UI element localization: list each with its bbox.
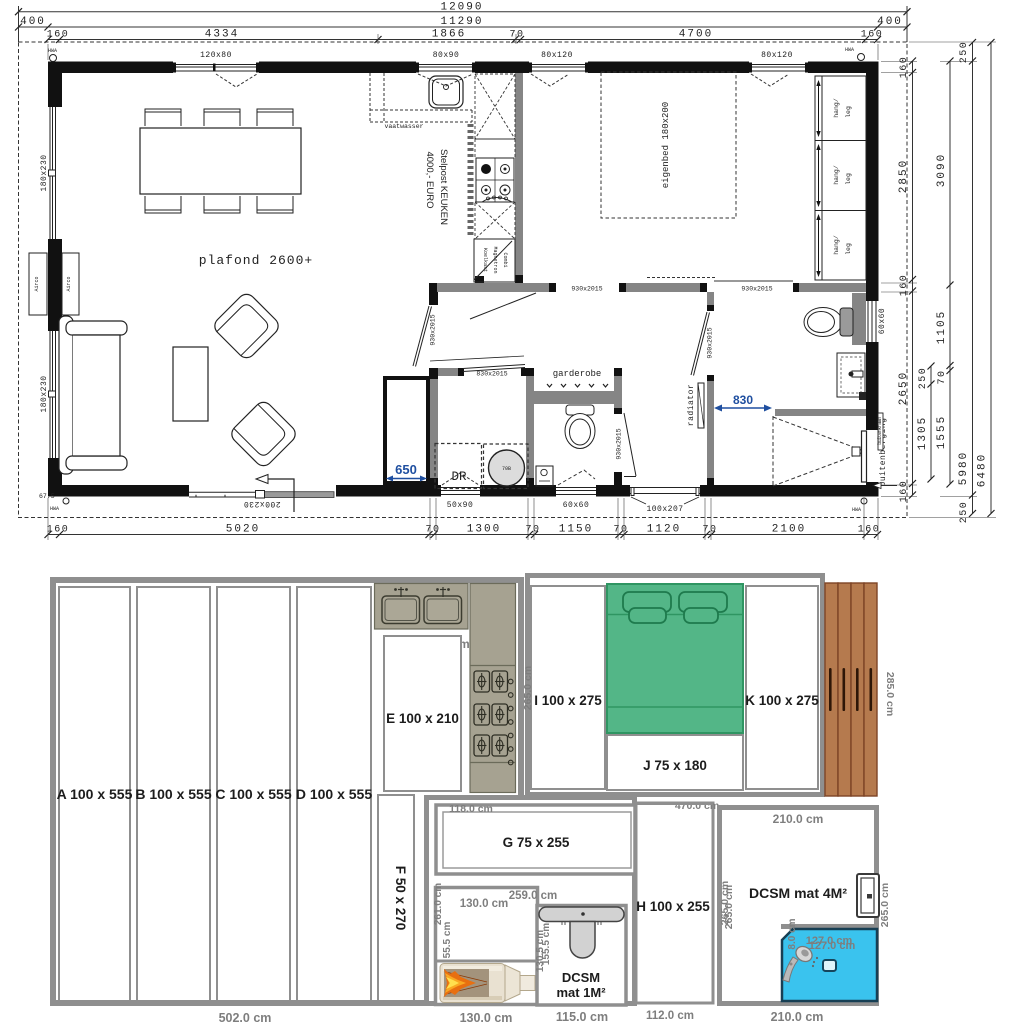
- svg-text:12090: 12090: [440, 2, 483, 14]
- svg-text:1305: 1305: [917, 416, 929, 450]
- svg-text:70: 70: [509, 30, 524, 41]
- svg-text:259.0 cm: 259.0 cm: [509, 890, 558, 902]
- svg-text:C 100 x 555: C 100 x 555: [215, 786, 291, 802]
- svg-text:200x230: 200x230: [243, 499, 280, 508]
- svg-text:1866: 1866: [432, 29, 466, 41]
- svg-text:Airco: Airco: [66, 276, 72, 291]
- svg-text:70: 70: [613, 525, 628, 536]
- svg-text:160: 160: [899, 56, 910, 79]
- svg-text:hang/: hang/: [833, 235, 840, 255]
- svg-text:4334: 4334: [205, 29, 239, 41]
- svg-text:160: 160: [47, 525, 70, 536]
- svg-text:vaatwasser: vaatwasser: [384, 123, 423, 130]
- svg-text:HWA: HWA: [852, 507, 861, 513]
- svg-text:265.0 cm: 265.0 cm: [879, 883, 891, 927]
- svg-text:127.0 cm: 127.0 cm: [809, 940, 856, 952]
- svg-text:HWA: HWA: [48, 48, 57, 54]
- svg-text:leg: leg: [845, 243, 852, 255]
- svg-text:Combi: Combi: [502, 252, 508, 267]
- svg-text:930x2015: 930x2015: [571, 286, 602, 293]
- svg-text:8.0 cm: 8.0 cm: [787, 918, 798, 949]
- svg-text:265.0 cm: 265.0 cm: [522, 666, 534, 710]
- svg-text:J 75 x 180: J 75 x 180: [643, 758, 707, 773]
- svg-text:G 75 x 255: G 75 x 255: [503, 835, 570, 850]
- svg-text:261.0 cm: 261.0 cm: [433, 883, 444, 925]
- svg-text:plafond 2600+: plafond 2600+: [199, 253, 313, 268]
- svg-text:3090: 3090: [936, 153, 948, 187]
- svg-text:120x80: 120x80: [200, 51, 232, 60]
- svg-text:250: 250: [959, 501, 970, 524]
- svg-text:80x120: 80x120: [541, 51, 573, 60]
- svg-text:eigenbed 180x200: eigenbed 180x200: [661, 102, 671, 188]
- svg-text:hang/: hang/: [833, 165, 840, 185]
- svg-text:Koelkast: Koelkast: [482, 248, 488, 272]
- svg-text:DR: DR: [451, 470, 467, 484]
- svg-text:930x2015: 930x2015: [707, 327, 714, 358]
- svg-text:830: 830: [733, 393, 753, 407]
- svg-text:1555: 1555: [936, 415, 948, 449]
- svg-text:1105: 1105: [936, 310, 948, 344]
- svg-text:6480: 6480: [977, 453, 989, 487]
- svg-text:180x230: 180x230: [40, 154, 49, 191]
- svg-text:H 100 x 255: H 100 x 255: [636, 899, 710, 914]
- svg-text:70B: 70B: [502, 466, 511, 472]
- svg-text:4000,- EURO: 4000,- EURO: [424, 151, 435, 208]
- svg-text:650: 650: [395, 462, 417, 477]
- svg-text:2650: 2650: [898, 371, 910, 405]
- svg-text:285.0 cm: 285.0 cm: [884, 672, 896, 716]
- svg-text:112.0 cm: 112.0 cm: [646, 1010, 694, 1022]
- svg-text:130.5 cm: 130.5 cm: [535, 930, 546, 972]
- svg-text:70: 70: [937, 369, 948, 384]
- svg-text:buitenkraan: buitenkraan: [877, 417, 883, 445]
- svg-text:Magnetron: Magnetron: [492, 246, 498, 273]
- svg-text:D 100 x 555: D 100 x 555: [296, 786, 372, 802]
- svg-text:470.0 cm: 470.0 cm: [675, 800, 719, 812]
- svg-text:118.0 cm: 118.0 cm: [449, 803, 493, 815]
- svg-text:100x207: 100x207: [646, 505, 683, 514]
- svg-text:HWA: HWA: [845, 47, 854, 53]
- svg-text:400: 400: [877, 16, 903, 28]
- svg-text:1150: 1150: [559, 524, 593, 536]
- svg-text:502.0 cm: 502.0 cm: [219, 1011, 272, 1025]
- svg-text:160: 160: [861, 30, 884, 41]
- svg-text:400: 400: [20, 16, 46, 28]
- svg-text:A 100 x 555: A 100 x 555: [57, 786, 133, 802]
- svg-text:Stelpost KEUKEN: Stelpost KEUKEN: [438, 149, 449, 225]
- svg-text:70: 70: [425, 525, 440, 536]
- svg-text:E 100 x 210: E 100 x 210: [386, 711, 459, 726]
- svg-text:160: 160: [899, 274, 910, 297]
- svg-text:radiator: radiator: [687, 384, 696, 426]
- svg-text:930x2015: 930x2015: [616, 428, 623, 459]
- svg-text:4700: 4700: [679, 29, 713, 41]
- svg-text:11290: 11290: [440, 16, 483, 28]
- svg-text:60x60: 60x60: [878, 308, 887, 335]
- svg-text:5980: 5980: [958, 451, 970, 485]
- svg-text:130.0 cm: 130.0 cm: [460, 898, 509, 910]
- svg-text:hang/: hang/: [833, 98, 840, 118]
- svg-text:DCSM: DCSM: [562, 970, 600, 985]
- svg-text:50x90: 50x90: [447, 501, 474, 510]
- svg-text:265.0 cm: 265.0 cm: [723, 885, 735, 929]
- svg-text:leg: leg: [845, 106, 852, 118]
- svg-text:I 100 x 275: I 100 x 275: [534, 693, 602, 708]
- svg-text:1300: 1300: [467, 524, 501, 536]
- svg-text:210.0 cm: 210.0 cm: [771, 1010, 824, 1024]
- svg-text:67.5: 67.5: [39, 493, 55, 500]
- svg-text:2850: 2850: [898, 159, 910, 193]
- svg-text:250: 250: [959, 41, 970, 64]
- svg-text:830x2015: 830x2015: [476, 371, 507, 378]
- svg-text:1120: 1120: [647, 524, 681, 536]
- svg-text:K 100 x 275: K 100 x 275: [745, 693, 819, 708]
- svg-text:DCSM mat 4M²: DCSM mat 4M²: [749, 885, 847, 901]
- svg-text:HWA: HWA: [50, 506, 59, 512]
- svg-text:2100: 2100: [772, 524, 806, 536]
- svg-text:160: 160: [858, 525, 881, 536]
- svg-text:80x90: 80x90: [433, 51, 460, 60]
- svg-text:930x2015: 930x2015: [741, 286, 772, 293]
- svg-text:5020: 5020: [226, 524, 260, 536]
- svg-text:garderobe: garderobe: [553, 369, 602, 379]
- svg-text:160: 160: [47, 30, 70, 41]
- svg-text:80x120: 80x120: [761, 51, 793, 60]
- svg-text:mat 1M²: mat 1M²: [556, 985, 606, 1000]
- svg-text:180x230: 180x230: [40, 375, 49, 412]
- svg-text:leg: leg: [845, 173, 852, 185]
- svg-text:60x60: 60x60: [563, 501, 590, 510]
- svg-text:210.0 cm: 210.0 cm: [773, 812, 824, 826]
- svg-text:130.0 cm: 130.0 cm: [460, 1011, 513, 1025]
- svg-text:250: 250: [918, 367, 929, 390]
- svg-text:Airco: Airco: [34, 276, 40, 291]
- svg-text:115.0 cm: 115.0 cm: [556, 1010, 608, 1024]
- svg-text:55.5 cm: 55.5 cm: [442, 922, 453, 959]
- svg-text:160: 160: [899, 480, 910, 503]
- svg-text:F 50 x 270: F 50 x 270: [393, 866, 408, 931]
- svg-text:930x2015: 930x2015: [430, 314, 437, 345]
- svg-text:B 100 x 555: B 100 x 555: [135, 786, 211, 802]
